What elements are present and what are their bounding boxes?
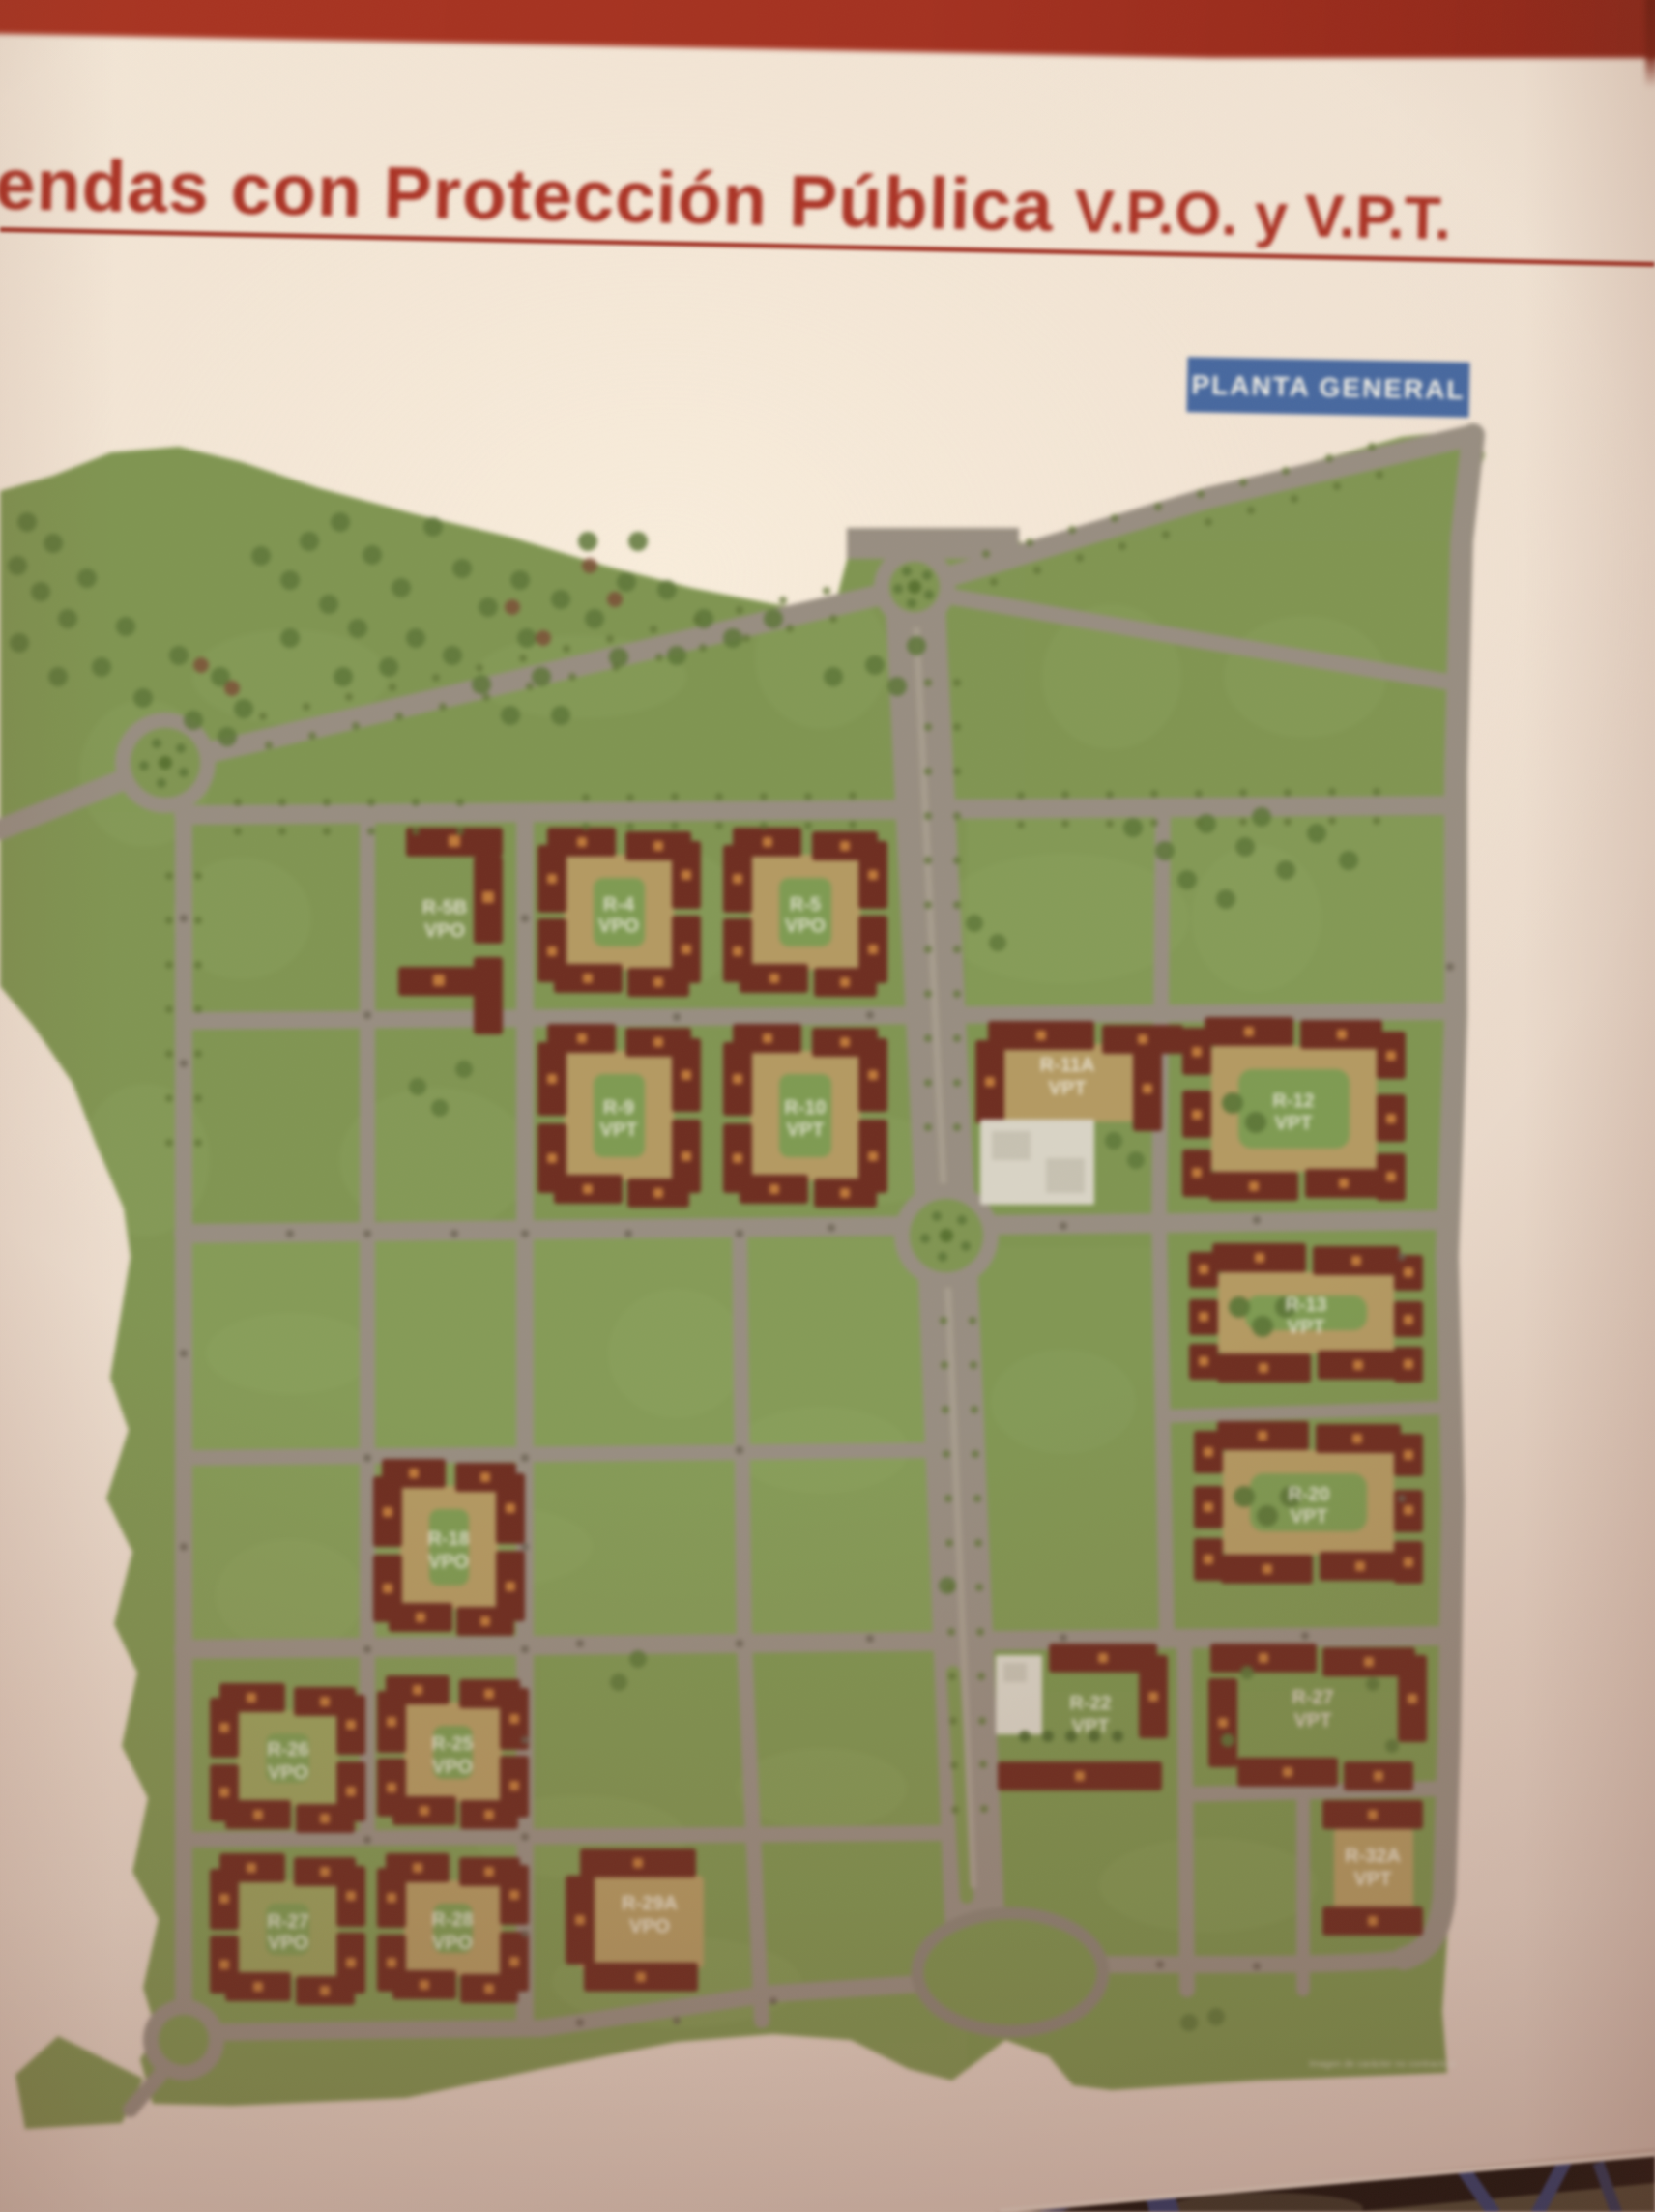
svg-text:VPO: VPO <box>268 1762 308 1784</box>
svg-text:R-28: R-28 <box>431 1909 473 1931</box>
svg-text:VPT: VPT <box>1354 1869 1392 1890</box>
svg-text:R-32A: R-32A <box>1345 1846 1401 1867</box>
svg-text:R-27: R-27 <box>1292 1687 1333 1708</box>
svg-text:VPT: VPT <box>787 1120 825 1141</box>
svg-text:VPO: VPO <box>598 916 639 937</box>
svg-text:VPT: VPT <box>1291 1506 1328 1528</box>
svg-text:R-4: R-4 <box>603 894 635 916</box>
svg-text:VPT: VPT <box>600 1120 638 1141</box>
svg-text:VPT: VPT <box>1072 1716 1110 1737</box>
svg-text:R-11A: R-11A <box>1040 1055 1095 1076</box>
svg-text:VPO: VPO <box>428 1552 469 1573</box>
svg-text:R-27: R-27 <box>267 1911 308 1933</box>
svg-text:R-18: R-18 <box>427 1528 469 1550</box>
svg-text:R-26: R-26 <box>267 1739 308 1761</box>
svg-text:VPT: VPT <box>1049 1078 1087 1099</box>
svg-text:R-22: R-22 <box>1069 1693 1111 1714</box>
svg-text:R-5: R-5 <box>790 894 821 916</box>
svg-text:VPO: VPO <box>629 1916 670 1937</box>
svg-text:R-20: R-20 <box>1288 1484 1329 1505</box>
svg-text:R-12: R-12 <box>1272 1091 1314 1112</box>
svg-text:Imagen de carácter no contract: Imagen de carácter no contractual <box>1309 2059 1456 2070</box>
svg-text:VPT: VPT <box>1288 1317 1325 1338</box>
svg-text:R-25: R-25 <box>431 1733 473 1755</box>
svg-text:R-10: R-10 <box>784 1097 826 1119</box>
svg-text:VPO: VPO <box>432 1933 473 1954</box>
svg-text:VPT: VPT <box>1275 1113 1313 1134</box>
svg-text:VPO: VPO <box>268 1933 308 1954</box>
svg-text:R-29A: R-29A <box>622 1893 678 1914</box>
svg-text:R-13: R-13 <box>1285 1295 1326 1316</box>
svg-text:R-5B: R-5B <box>422 897 468 918</box>
svg-text:VPT: VPT <box>1294 1710 1332 1732</box>
svg-text:VPO: VPO <box>785 916 826 937</box>
svg-text:VPO: VPO <box>424 920 465 942</box>
svg-text:R-9: R-9 <box>603 1097 634 1119</box>
svg-text:VPO: VPO <box>432 1757 473 1778</box>
